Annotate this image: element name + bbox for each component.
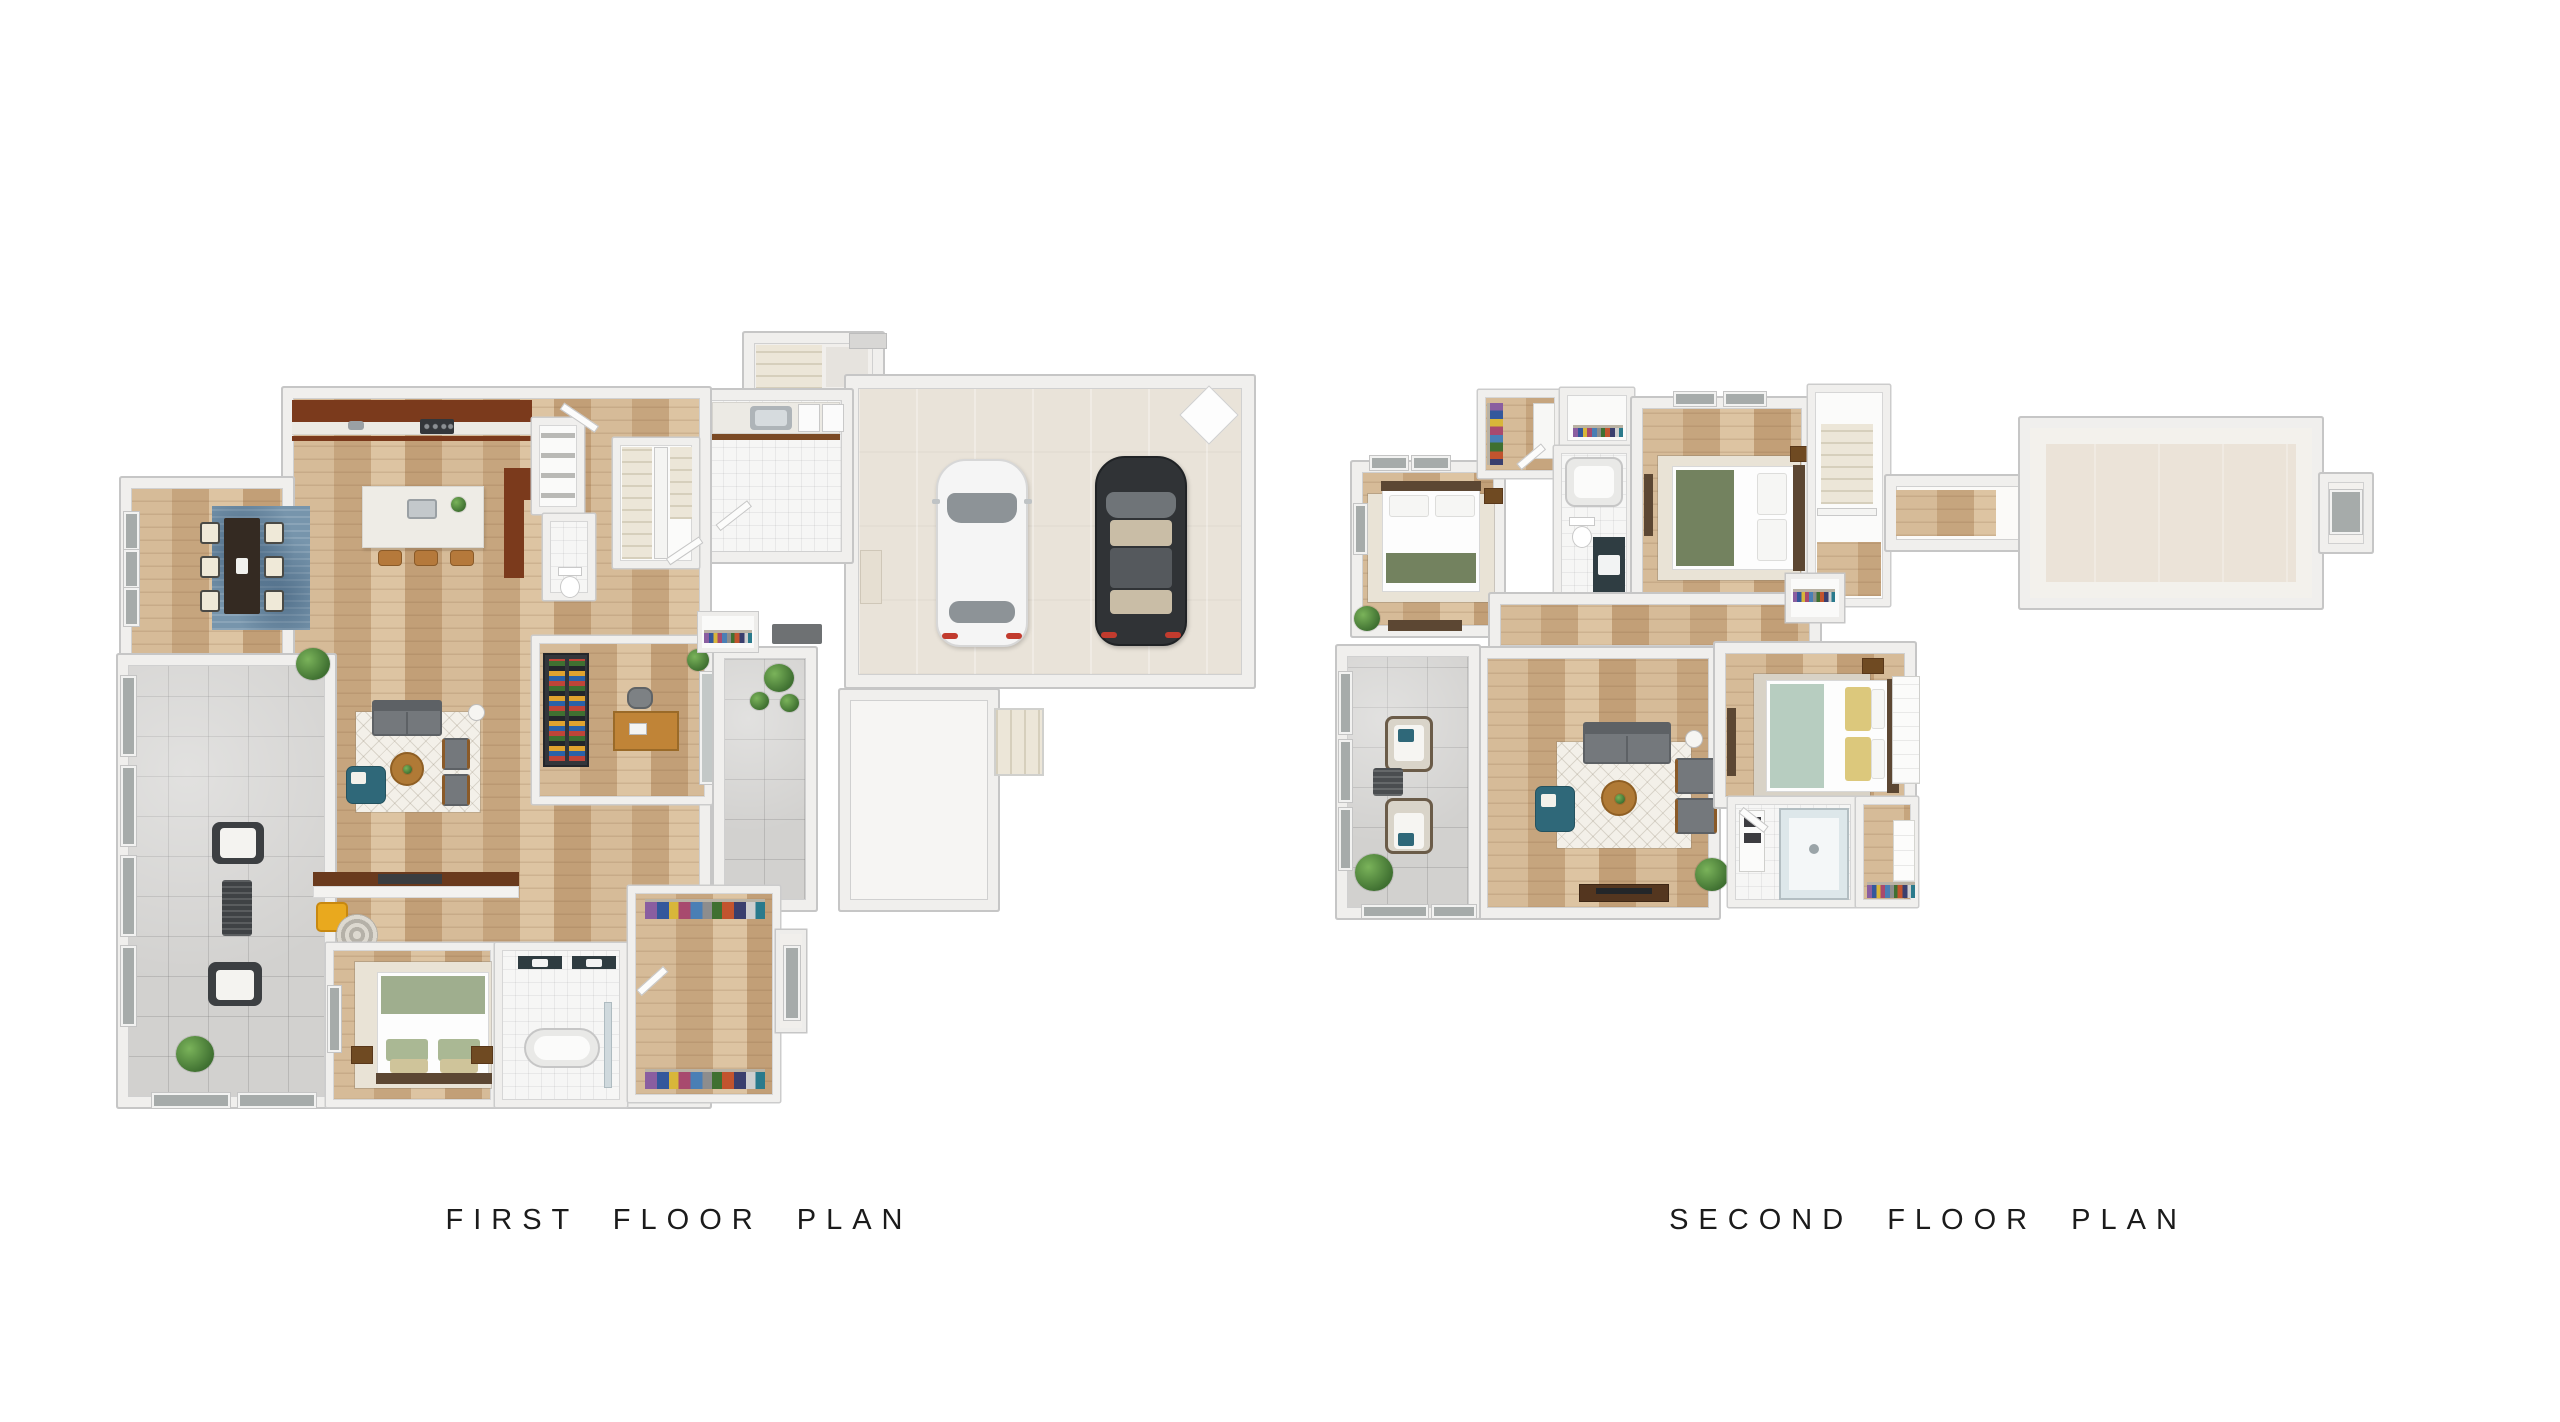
deck-plant	[1355, 854, 1393, 891]
bedroom-3-dresser	[1644, 474, 1653, 536]
master-shower	[1779, 808, 1849, 900]
bedroom-2-window-left	[1354, 504, 1367, 554]
bedroom-2-plant	[1354, 606, 1380, 631]
bed-3	[1672, 466, 1804, 570]
floor-plan-image: FIRST FLOOR PLAN	[0, 0, 2560, 1422]
second-floor-plan: SECOND FLOOR PLAN	[0, 0, 2560, 1422]
deck-window-1	[1339, 672, 1352, 734]
hall-bath-toilet-tank	[1569, 517, 1595, 526]
bed-3-pillow-2	[1757, 519, 1787, 561]
loft-teal-chair	[1535, 786, 1575, 832]
bonus-corridor	[1886, 476, 2030, 550]
bedroom-3-closet	[1786, 574, 1844, 622]
loft-chair-2	[1675, 798, 1717, 834]
master-bathroom	[1728, 797, 1858, 907]
deck-chair-1	[1385, 716, 1433, 772]
bonus-corridor-floor	[1896, 490, 1996, 536]
bedroom-2-nightstand	[1484, 488, 1503, 504]
deck-chair-2	[1385, 798, 1433, 854]
master-pillow-white-2	[1871, 739, 1885, 779]
stairs-2-treads	[1821, 424, 1873, 504]
deck-table	[1373, 768, 1403, 796]
bedroom-2-dresser	[1388, 620, 1462, 631]
master-pillow-white-1	[1871, 689, 1885, 729]
loft-sofa-back	[1585, 724, 1669, 734]
bed-2-headboard	[1381, 481, 1481, 491]
loft-sofa-split	[1626, 736, 1628, 762]
hall-bathroom	[1554, 446, 1634, 606]
master-shower-head	[1809, 844, 1819, 854]
bedroom-3-window-1	[1674, 392, 1716, 406]
master-shower-tray	[1789, 818, 1839, 890]
bonus-bay-window	[2330, 490, 2362, 534]
master-vanity-drawer-2	[1744, 833, 1761, 843]
master-closet-dresser	[1893, 820, 1915, 882]
deck-window-2	[1339, 740, 1352, 802]
bed-3-pillow-1	[1757, 473, 1787, 515]
hall-bath-vanity	[1593, 537, 1625, 593]
bed-2-pillow-1	[1389, 495, 1429, 517]
master-bed-seafoam	[1770, 684, 1824, 788]
tv-console	[1579, 884, 1669, 902]
closet-2	[1478, 390, 1562, 478]
hall-bath-tub-basin	[1574, 466, 1614, 498]
master-bedroom	[1715, 643, 1915, 807]
linen-stacks	[1573, 425, 1623, 437]
master-pillow-yellow-2	[1845, 737, 1871, 781]
loft-chair-1	[1675, 758, 1717, 794]
second-floor-caption: SECOND FLOOR PLAN	[1669, 1204, 2187, 1237]
bedroom-3	[1632, 398, 1812, 606]
loft-sofa	[1583, 722, 1671, 764]
bed-3-blanket-green	[1676, 470, 1734, 566]
loft-teal-pillow	[1541, 794, 1556, 807]
bonus-room	[2020, 418, 2322, 608]
loft-coffee-table	[1601, 780, 1637, 816]
bed-2-blanket-green	[1386, 553, 1476, 583]
bedroom-2-window-top-2	[1412, 456, 1450, 470]
stairwell-2	[1808, 385, 1890, 606]
master-closet-clothes	[1867, 882, 1915, 898]
hall-bath-sink	[1598, 555, 1620, 575]
deck-window-bottom-1	[1362, 905, 1428, 918]
loft-tv	[1596, 888, 1652, 894]
bed-2-pillow-2	[1435, 495, 1475, 517]
stairs-2-rail	[1817, 508, 1877, 516]
hall-bath-tub	[1565, 457, 1623, 507]
loft-side-table	[1685, 730, 1703, 748]
bedroom-3-closet-clothes	[1793, 589, 1835, 602]
loft-living	[1477, 648, 1719, 918]
bedroom-3-window-2	[1724, 392, 1766, 406]
deck-window-bottom-2	[1432, 905, 1476, 918]
hall-bath-toilet-bowl	[1572, 526, 1592, 548]
bedroom-2-window-top-1	[1370, 456, 1408, 470]
master-bed	[1766, 680, 1890, 792]
master-wardrobe	[1892, 676, 1920, 784]
bed-2	[1382, 484, 1480, 592]
deck-chair-2-pillow	[1398, 833, 1414, 846]
bonus-bay	[2320, 474, 2372, 552]
bedroom-2	[1352, 462, 1504, 636]
closet-2-clothes	[1487, 403, 1503, 465]
linen-closet	[1560, 388, 1634, 448]
deck	[1337, 646, 1479, 918]
loft-table-plant	[1615, 794, 1625, 804]
loft-plant	[1695, 858, 1729, 891]
master-pillow-yellow-1	[1845, 687, 1871, 731]
deck-window-3	[1339, 808, 1352, 870]
master-closet	[1856, 797, 1918, 907]
deck-chair-1-pillow	[1398, 729, 1414, 742]
master-nightstand-1	[1862, 658, 1884, 674]
bed-3-headboard	[1793, 465, 1805, 571]
master-dresser	[1727, 708, 1736, 776]
